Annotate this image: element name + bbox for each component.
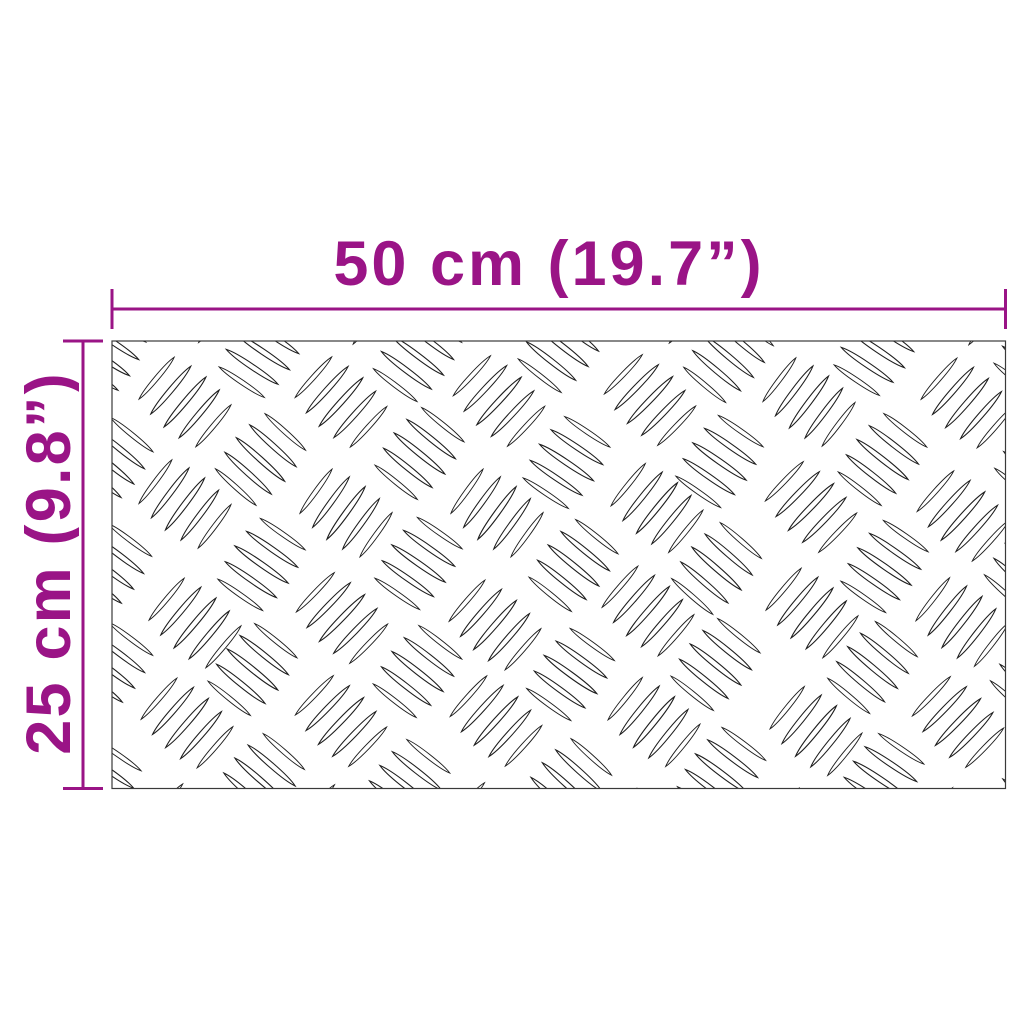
svg-text:50 cm (19.7”): 50 cm (19.7”) bbox=[333, 229, 764, 299]
svg-text:25 cm (9.8”): 25 cm (9.8”) bbox=[14, 371, 84, 755]
